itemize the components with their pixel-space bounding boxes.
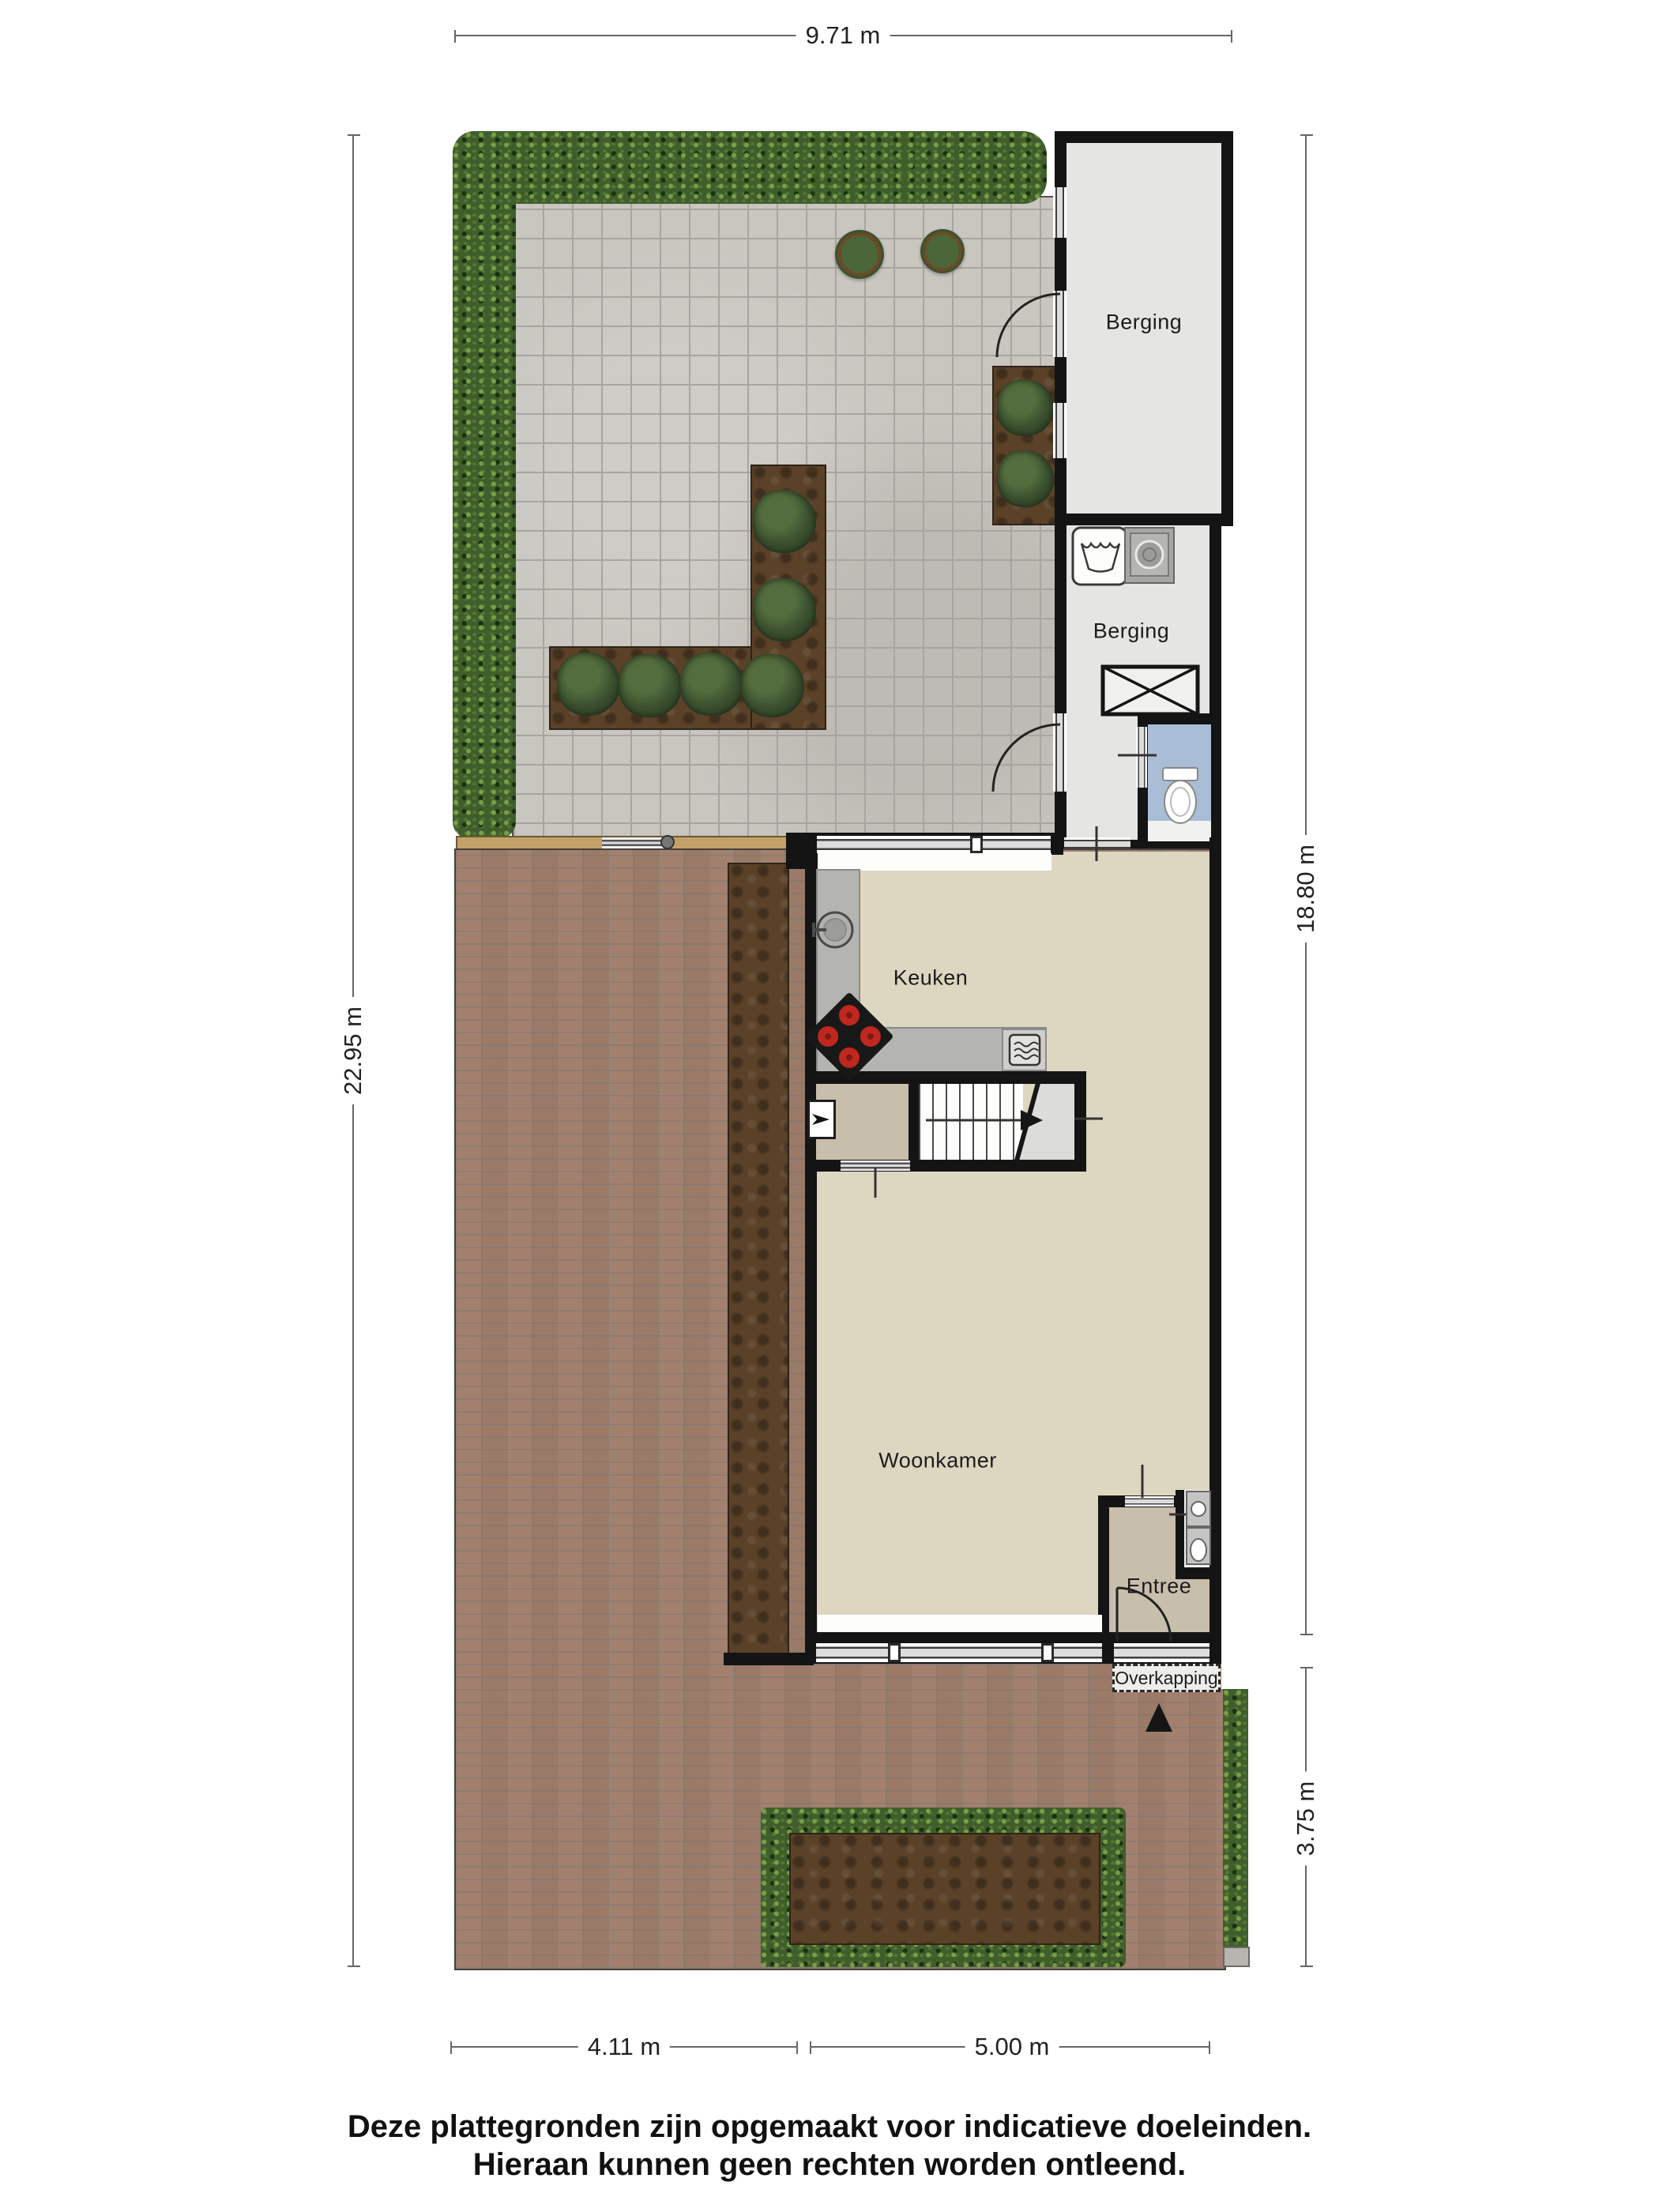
floorplan-page: 9.71 m 22.95 m 18.80 m 3.75 m 4.11 m 5.0… [0,0,1659,2212]
washbasin-icon [1187,1492,1210,1526]
gate-hinge-icon [661,836,674,848]
laundry-sink-icon [1073,528,1127,585]
toilet-icon [1163,768,1198,823]
ventilation-arrow-glyph [812,1114,829,1125]
door-arc-entree [1117,1588,1171,1642]
attic-hatch-icon [1103,667,1198,714]
disclaimer-line-1: Deze plattegronden zijn opgemaakt voor i… [0,2108,1659,2146]
kitchen-sink-icon [814,912,852,947]
stairs-arrow-icon [926,1110,1043,1130]
oven-icon [1010,1035,1040,1065]
washing-machine-icon [1125,528,1174,583]
cooktop-icon [804,991,893,1081]
plan-linework [0,0,1659,2212]
toilet-icon [1187,1528,1210,1564]
door-arc-berging-top [997,294,1060,357]
door-arc-berging-bottom [993,724,1060,792]
disclaimer-line-2: Hieraan kunnen geen rechten worden ontle… [0,2146,1659,2184]
